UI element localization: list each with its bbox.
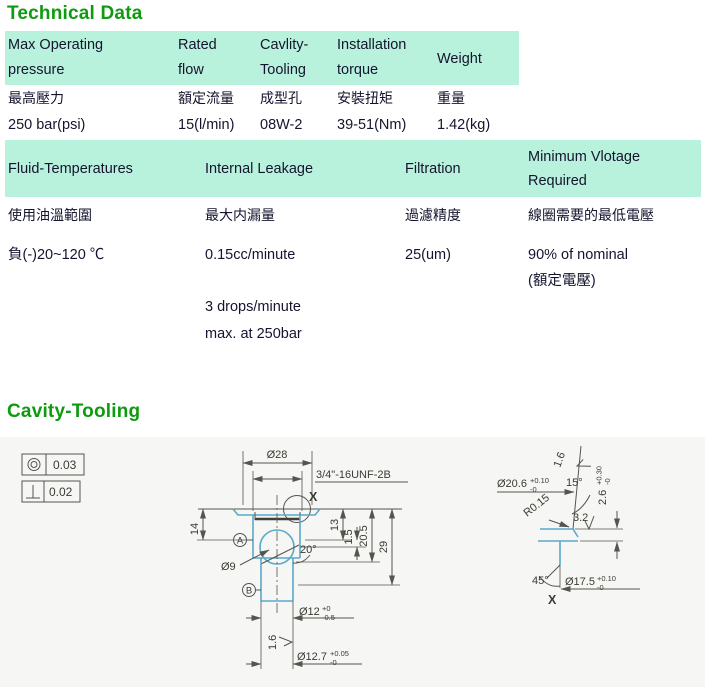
dim-label-d12-7-tol-top: +0.05 bbox=[330, 649, 349, 658]
surface-finish-icon-stem bbox=[279, 637, 292, 646]
table2-header-internal-leakage: Internal Leakage bbox=[202, 140, 402, 197]
table1-header-cavity-tooling: Cavlity-Tooling bbox=[257, 33, 334, 85]
dim-label-29: 29 bbox=[378, 541, 390, 553]
table1-values-row: 250 bar(psi) 15(l/min) 08W-2 39-51(Nm) 1… bbox=[5, 112, 519, 138]
voltage-note-line: (額定電壓) bbox=[528, 268, 701, 294]
concentricity-value: 0.03 bbox=[53, 458, 77, 472]
table2-zh-filtration: 過濾精度 bbox=[402, 197, 525, 233]
table2-header-minimum-voltage: Minimum Vlotage Required bbox=[525, 140, 701, 197]
table2-header-fluid-temperatures: Fluid-Temperatures bbox=[5, 140, 202, 197]
dim-label-20-5: 20.5 bbox=[358, 525, 370, 546]
table2-value-internal-leakage: 0.15cc/minute bbox=[202, 233, 402, 268]
voltage-nominal-line: 90% of nominal bbox=[528, 242, 701, 268]
table1-value-cavity-tooling: 08W-2 bbox=[257, 112, 334, 138]
detail-x-view: 1.6 Ø20.6 +0.10 -0 15° 2.6 +0.30 -0 bbox=[497, 446, 640, 607]
dim-label-r0-15: R0.15 bbox=[521, 492, 552, 520]
table2-value-fluid-temperatures: 負(-)20~120 ℃ bbox=[5, 233, 202, 268]
dim-label-d20-6-tol-bot: -0 bbox=[530, 485, 537, 494]
technical-data-title: Technical Data bbox=[7, 3, 143, 25]
cavity-tooling-drawing-area: 0.03 0.02 Ø28 3/4"-16UNF bbox=[0, 437, 705, 687]
table1-zh-weight: 重量 bbox=[434, 85, 519, 112]
table1-value-rated-flow: 15(l/min) bbox=[175, 112, 257, 138]
table2-values-row: 負(-)20~120 ℃ 0.15cc/minute 25(um) 90% of… bbox=[5, 233, 701, 294]
leakage-max-line: max. at 250bar bbox=[202, 321, 402, 348]
detail-x-view-label: X bbox=[548, 593, 557, 607]
concentricity-icon bbox=[28, 459, 40, 471]
fluid-data-table: Fluid-Temperatures Internal Leakage Filt… bbox=[5, 140, 701, 348]
table2-header-row: Fluid-Temperatures Internal Leakage Filt… bbox=[5, 140, 701, 197]
dim-label-1-5: 1.5 bbox=[343, 529, 355, 544]
dim-label-d17-5-tol-bot: -0 bbox=[597, 583, 604, 592]
detail-x-marker: X bbox=[309, 490, 318, 504]
table1-chinese-row: 最高壓力 額定流量 成型孔 安裝扭矩 重量 bbox=[5, 85, 519, 112]
main-section-view: Ø28 3/4"-16UNF-2B X bbox=[189, 449, 408, 669]
dim-label-13: 13 bbox=[329, 519, 341, 531]
dim-label-d12-7-tol-bot: -0 bbox=[330, 658, 337, 667]
dim-label-thread: 3/4"-16UNF-2B bbox=[316, 469, 391, 481]
dim-label-d9: Ø9 bbox=[221, 561, 236, 573]
finish-label-1-6-stem: 1.6 bbox=[267, 635, 279, 650]
table2-leakage-extra-row-2: max. at 250bar bbox=[5, 321, 701, 348]
table2-value-filtration: 25(um) bbox=[402, 233, 525, 268]
table1-value-max-pressure: 250 bar(psi) bbox=[5, 112, 175, 138]
dim-label-d12: Ø12 bbox=[299, 606, 320, 618]
table2-header-filtration: Filtration bbox=[402, 140, 525, 197]
table2-zh-internal-leakage: 最大内漏量 bbox=[202, 197, 402, 233]
cavity-tooling-title: Cavity-Tooling bbox=[7, 401, 140, 423]
cavity-tooling-drawing: 0.03 0.02 Ø28 3/4"-16UNF bbox=[0, 437, 705, 687]
table1-zh-rated-flow: 額定流量 bbox=[175, 85, 257, 112]
datum-a-label: A bbox=[237, 536, 244, 547]
perpendicularity-icon bbox=[26, 485, 40, 498]
table1-header-weight: Weight bbox=[434, 33, 519, 85]
flange-profile bbox=[233, 509, 320, 515]
dim-label-d20-6-tol-top: +0.10 bbox=[530, 476, 549, 485]
datum-b-label: B bbox=[246, 586, 252, 597]
dim-label-14: 14 bbox=[189, 523, 201, 535]
tolerance-frames: 0.03 0.02 bbox=[22, 454, 84, 502]
dim-label-d28: Ø28 bbox=[267, 449, 288, 461]
table1-zh-installation-torque: 安裝扭矩 bbox=[334, 85, 434, 112]
finish-label-1-6-detail: 1.6 bbox=[552, 451, 569, 469]
dim-label-angle45: 45° bbox=[532, 575, 549, 587]
perpendicularity-value: 0.02 bbox=[49, 485, 73, 499]
datasheet-page: Technical Data Max Operating pressure Ra… bbox=[0, 0, 705, 687]
dim-label-d12-7: Ø12.7 bbox=[297, 651, 327, 663]
table1-value-weight: 1.42(kg) bbox=[434, 112, 519, 138]
dim-label-d12-tol-bot: -0.5 bbox=[322, 613, 335, 622]
table2-zh-fluid-temperatures: 使用油溫範圍 bbox=[5, 197, 202, 233]
dim-label-d12-tol-top: +0 bbox=[322, 604, 331, 613]
table1-header-rated-flow: Rated flow bbox=[175, 33, 257, 85]
table2-value-minimum-voltage: 90% of nominal (額定電壓) bbox=[525, 233, 701, 294]
surface-finish-icon-seat bbox=[576, 458, 591, 471]
table1-zh-cavity-tooling: 成型孔 bbox=[257, 85, 334, 112]
dim-label-angle20: 20° bbox=[300, 544, 317, 556]
dim-label-d20-6: Ø20.6 bbox=[497, 478, 527, 490]
table2-zh-minimum-voltage: 線圈需要的最低電壓 bbox=[525, 197, 701, 233]
technical-data-table: Max Operating pressure Rated flow Cavlit… bbox=[5, 31, 519, 138]
table1-header-row: Max Operating pressure Rated flow Cavlit… bbox=[5, 31, 519, 85]
table1-zh-max-pressure: 最高壓力 bbox=[5, 85, 175, 112]
dim-label-d17-5-tol-top: +0.10 bbox=[597, 574, 616, 583]
dim-label-angle15: 15° bbox=[566, 477, 583, 489]
leakage-drops-line: 3 drops/minute bbox=[202, 294, 402, 321]
table2-chinese-row: 使用油溫範圍 最大内漏量 過濾精度 線圈需要的最低電壓 bbox=[5, 197, 701, 233]
dim-label-2-6-group: 2.6 +0.30 -0 bbox=[595, 466, 613, 505]
table1-header-max-pressure: Max Operating pressure bbox=[5, 33, 175, 85]
dim-label-2-6-tol-bot: -0 bbox=[603, 478, 612, 485]
table1-header-installation-torque: Installation torque bbox=[334, 33, 434, 85]
table1-value-installation-torque: 39-51(Nm) bbox=[334, 112, 434, 138]
table2-leakage-extra-row-1: 3 drops/minute bbox=[5, 294, 701, 321]
dim-label-2-6: 2.6 bbox=[597, 490, 609, 505]
dim-label-d17-5: Ø17.5 bbox=[565, 576, 595, 588]
chamfer-line bbox=[547, 565, 560, 578]
seat-step-profile bbox=[538, 529, 578, 565]
